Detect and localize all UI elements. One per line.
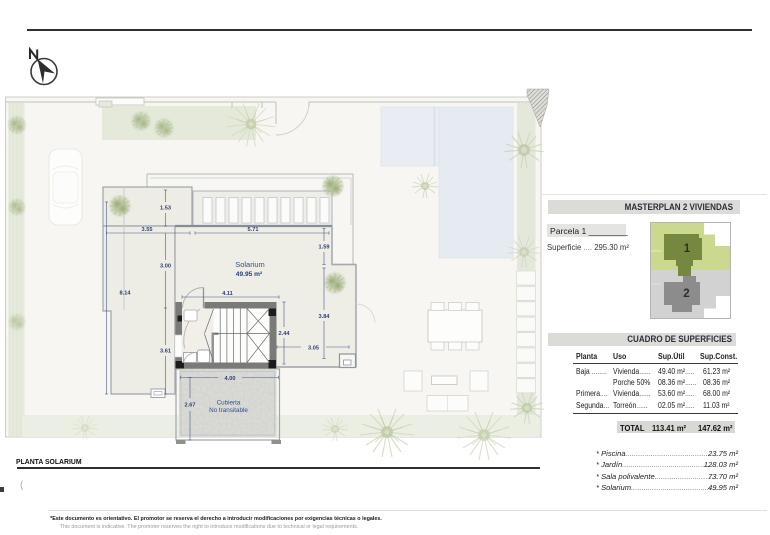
svg-text:3.61: 3.61 [160, 349, 171, 355]
svg-text:Cubierta: Cubierta [217, 400, 241, 407]
svg-text:2: 2 [683, 288, 689, 300]
svg-text:3.55: 3.55 [142, 227, 153, 233]
svg-text:1: 1 [684, 243, 691, 255]
svg-text:3.84: 3.84 [319, 314, 331, 320]
svg-text:3.05: 3.05 [308, 346, 319, 352]
svg-text:3.00: 3.00 [160, 264, 171, 270]
svg-text:No transitable: No transitable [209, 407, 248, 414]
svg-text:4.11: 4.11 [222, 291, 233, 297]
svg-text:5.71: 5.71 [248, 227, 259, 233]
svg-text:1.53: 1.53 [160, 206, 171, 212]
svg-text:49.95 m²: 49.95 m² [236, 271, 263, 278]
svg-text:Solarium: Solarium [235, 260, 265, 269]
svg-text:2.67: 2.67 [185, 403, 196, 409]
svg-text:2.44: 2.44 [279, 331, 291, 337]
svg-text:4.00: 4.00 [225, 376, 236, 382]
svg-text:8.14: 8.14 [120, 291, 132, 297]
svg-text:1.59: 1.59 [319, 245, 330, 251]
